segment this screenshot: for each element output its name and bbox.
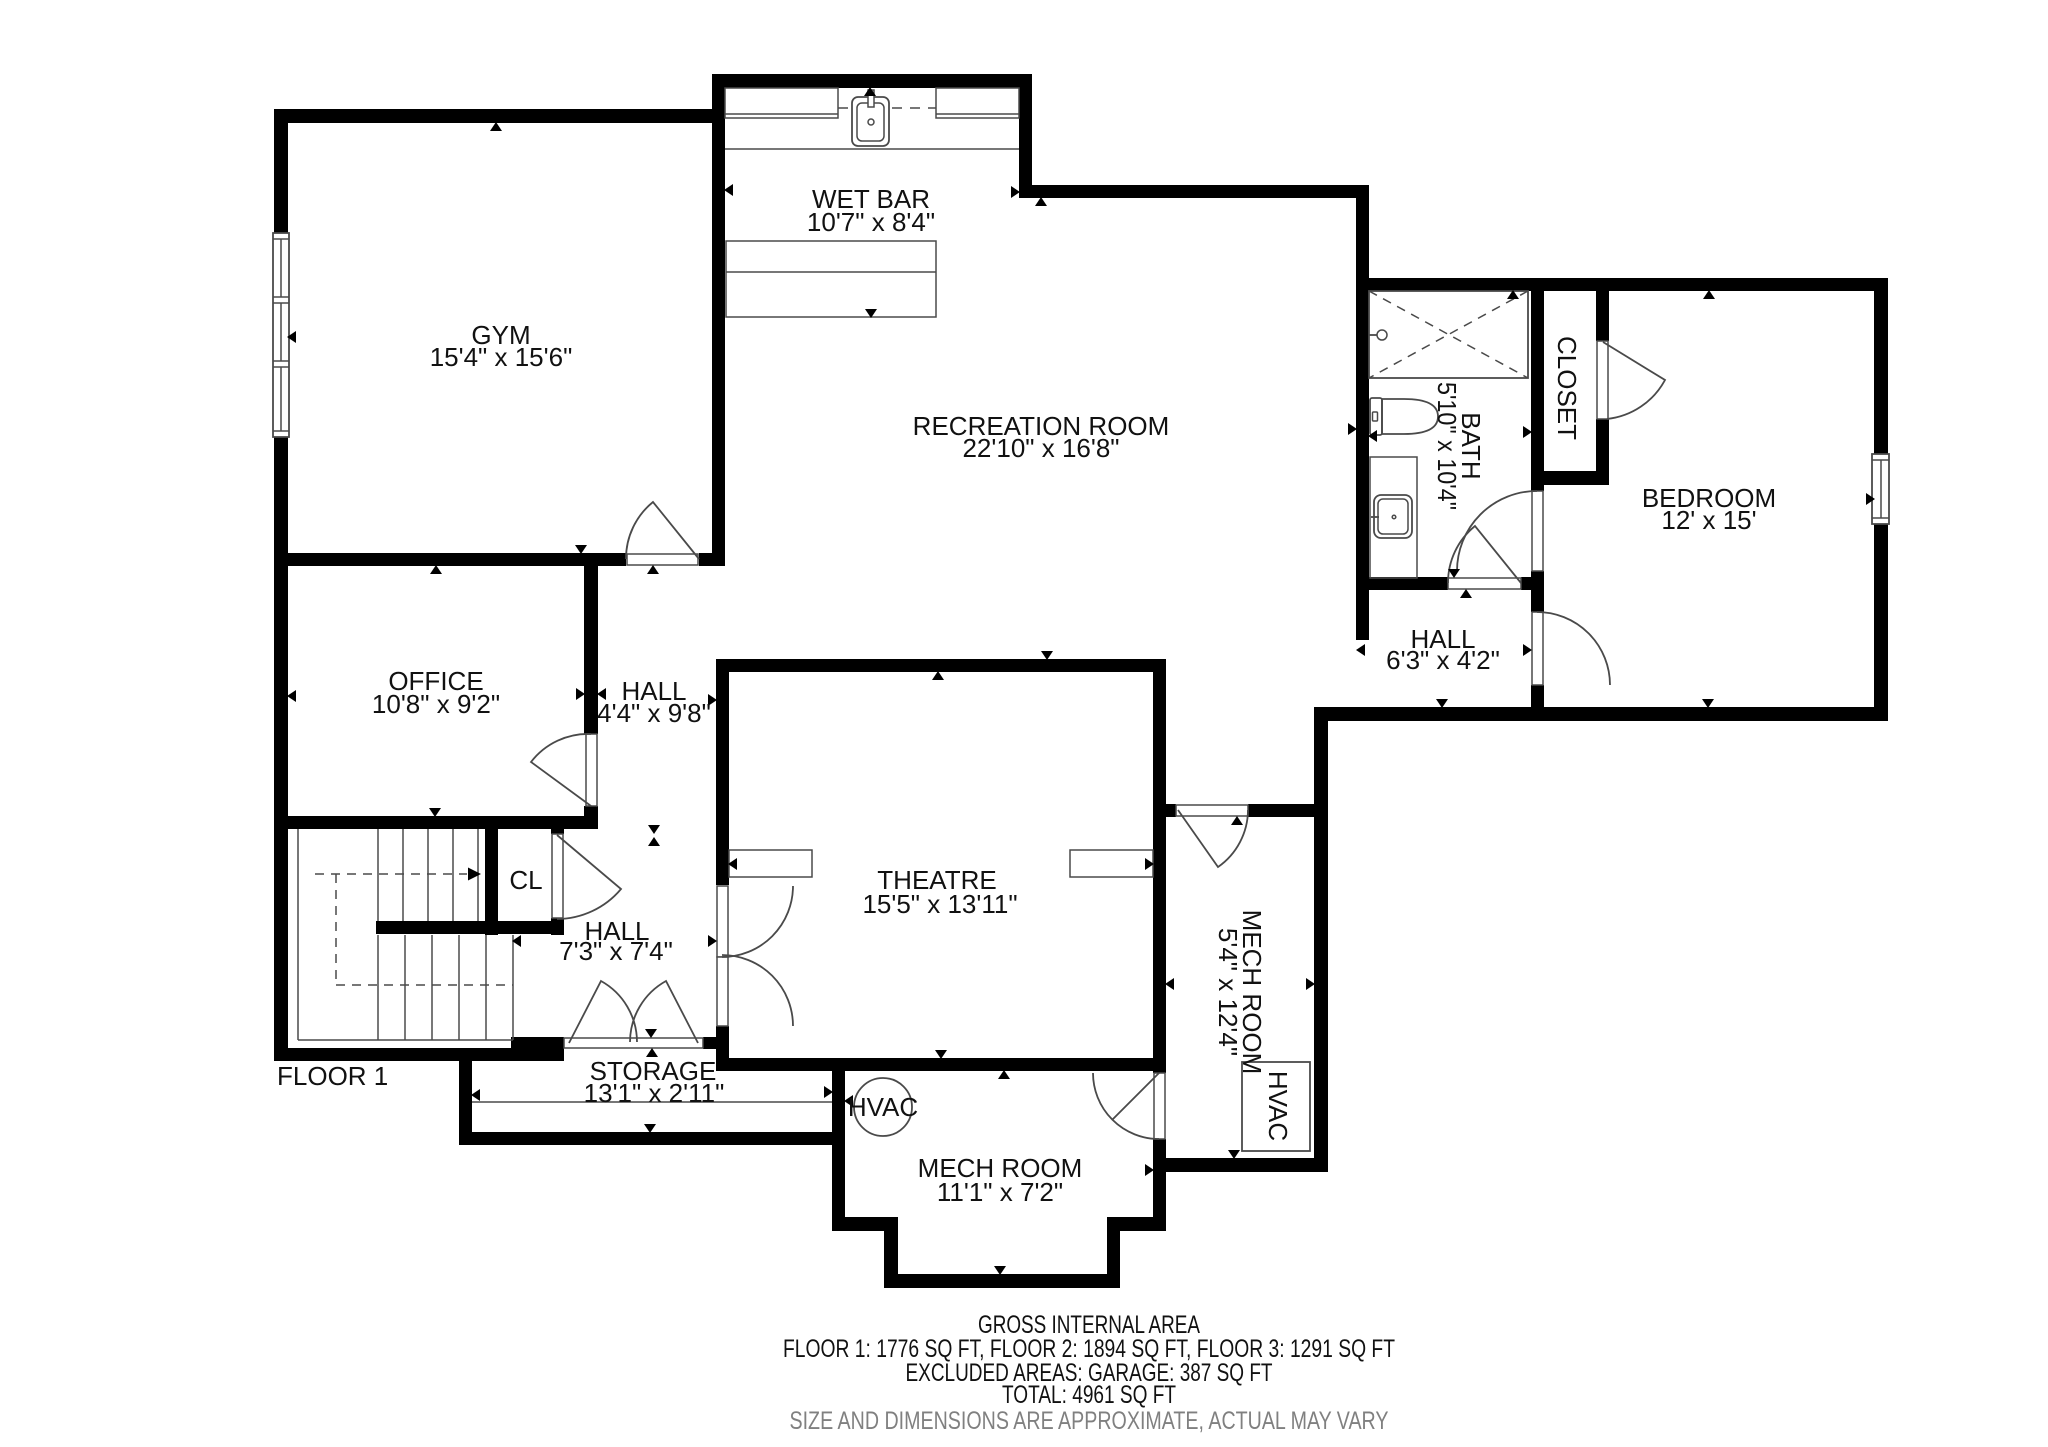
svg-text:CL: CL [509,865,542,895]
svg-text:5'4" x 12'4": 5'4" x 12'4" [1213,928,1243,1056]
svg-text:12' x 15': 12' x 15' [1661,505,1756,535]
svg-text:HVAC: HVAC [1263,1071,1293,1141]
svg-text:5'10" x 10'4": 5'10" x 10'4" [1432,382,1462,510]
svg-text:FLOOR 1: FLOOR 1 [277,1061,388,1091]
svg-text:TOTAL: 4961 SQ FT: TOTAL: 4961 SQ FT [1002,1381,1176,1409]
svg-text:10'7" x 8'4": 10'7" x 8'4" [807,207,935,237]
svg-text:15'4" x 15'6": 15'4" x 15'6" [430,342,573,372]
svg-text:SIZE AND DIMENSIONS ARE APPROX: SIZE AND DIMENSIONS ARE APPROXIMATE, ACT… [790,1407,1389,1435]
svg-text:6'3" x 4'2": 6'3" x 4'2" [1386,645,1500,675]
svg-text:10'8" x 9'2": 10'8" x 9'2" [372,689,500,719]
svg-text:4'4" x 9'8": 4'4" x 9'8" [597,698,711,728]
svg-text:HVAC: HVAC [848,1092,918,1122]
svg-text:22'10" x 16'8": 22'10" x 16'8" [962,433,1119,463]
svg-text:7'3" x 7'4": 7'3" x 7'4" [559,936,673,966]
svg-text:15'5" x 13'11": 15'5" x 13'11" [862,889,1017,919]
svg-text:CLOSET: CLOSET [1552,336,1582,440]
svg-text:13'1" x 2'11": 13'1" x 2'11" [584,1078,725,1108]
svg-text:11'1" x 7'2": 11'1" x 7'2" [937,1177,1063,1207]
